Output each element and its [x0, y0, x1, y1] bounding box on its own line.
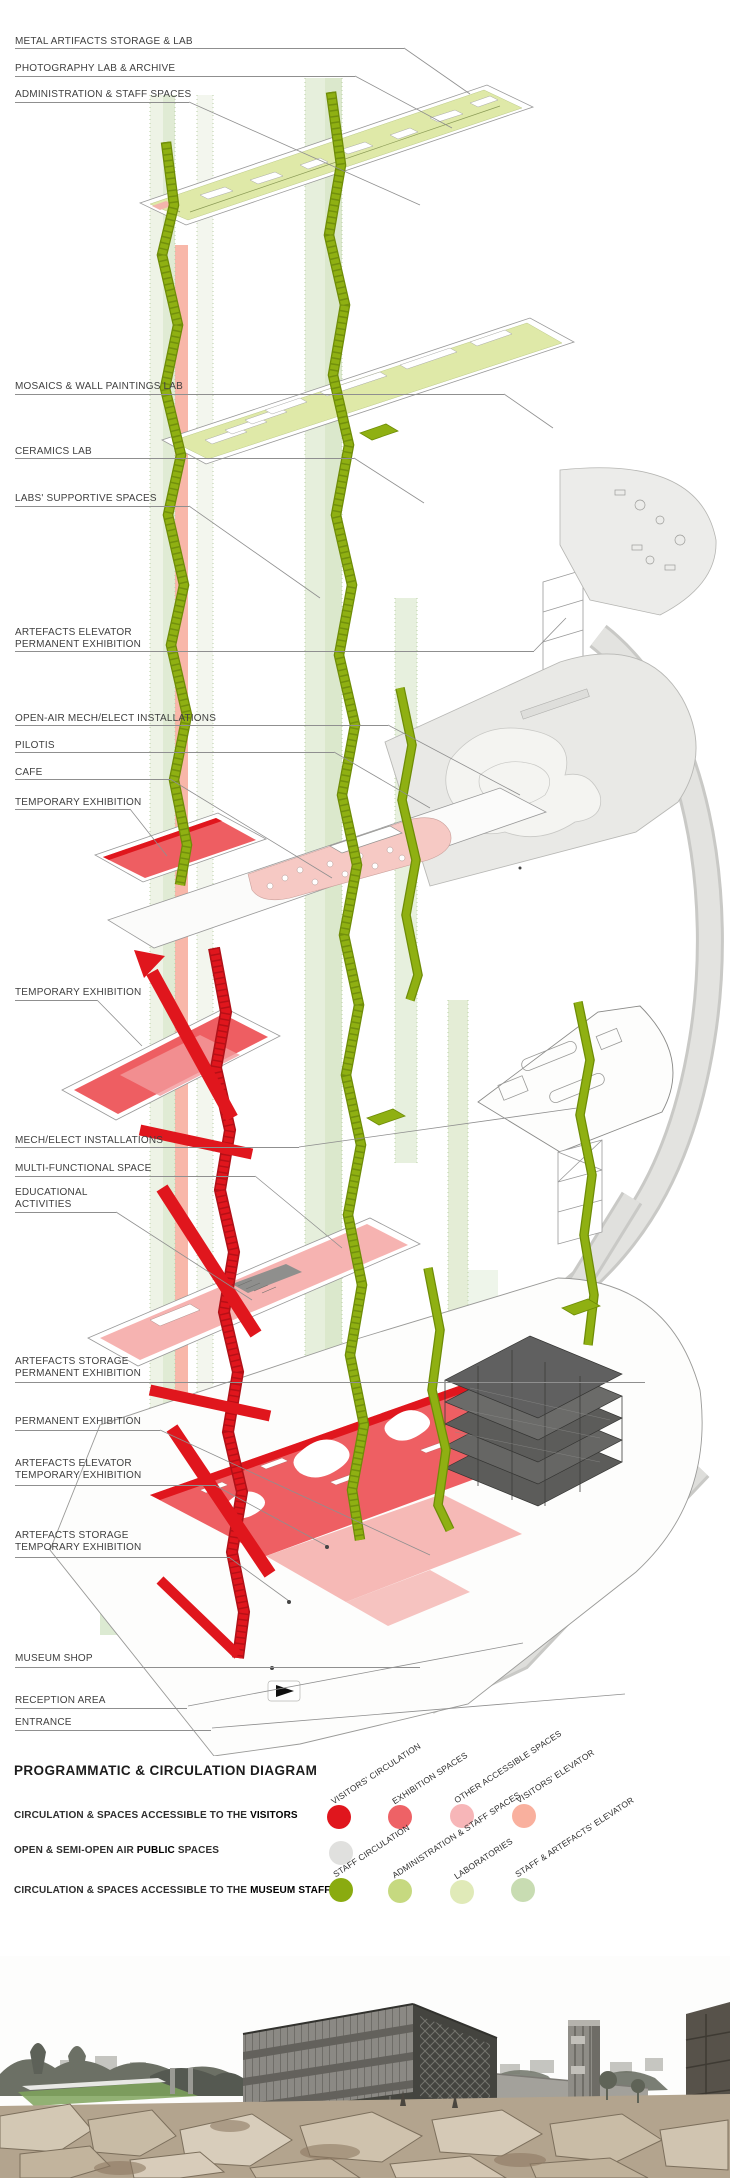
legend-title: PROGRAMMATIC & CIRCULATION DIAGRAM [14, 1763, 317, 1778]
leader-underline [15, 809, 130, 810]
swatch-label: LABORATORIES [452, 1836, 514, 1881]
leader-underline [15, 779, 170, 780]
leader-underline [15, 1667, 420, 1668]
legend-row-strong: VISITORS [250, 1810, 298, 1821]
label-administration: ADMINISTRATION & STAFF SPACES [15, 89, 191, 101]
label-artefacts-elevator-temporary: ARTEFACTS ELEVATOR TEMPORARY EXHIBITION [15, 1458, 141, 1481]
swatch-visitors-circulation [327, 1805, 351, 1829]
visitors-elevator-tower [558, 1140, 602, 1244]
leader-underline [15, 651, 534, 652]
label-temporary-exhibition-2: TEMPORARY EXHIBITION [15, 987, 141, 999]
legend-row-text: CIRCULATION & SPACES ACCESSIBLE TO THE [14, 1885, 250, 1896]
leader-underline [15, 1557, 230, 1558]
floor-mech-elect [478, 1006, 673, 1152]
legend-row-text: OPEN & SEMI-OPEN AIR [14, 1845, 137, 1856]
swatch-staff-artefacts-elevator [511, 1878, 535, 1902]
label-mech-elect: MECH/ELECT INSTALLATIONS [15, 1135, 163, 1147]
label-mosaics-lab: MOSAICS & WALL PAINTINGS LAB [15, 381, 183, 393]
label-photography-lab: PHOTOGRAPHY LAB & ARCHIVE [15, 63, 175, 75]
axonometric-diagram [0, 0, 730, 1756]
legend-row-text: CIRCULATION & SPACES ACCESSIBLE TO THE [14, 1810, 250, 1821]
leader-underline [15, 102, 189, 103]
leader-underline [15, 725, 388, 726]
label-cafe: CAFE [15, 767, 42, 779]
leader-underline [15, 1430, 160, 1431]
leader-underline [15, 458, 354, 459]
floor-labs [162, 318, 583, 674]
leader-underline [15, 1000, 97, 1001]
label-artefacts-storage-permanent: ARTEFACTS STORAGE PERMANENT EXHIBITION [15, 1356, 141, 1379]
swatch-staff-circulation [329, 1878, 353, 1902]
label-museum-shop: MUSEUM SHOP [15, 1653, 93, 1665]
leader-underline [15, 1212, 116, 1213]
poster-page: METAL ARTIFACTS STORAGE & LAB PHOTOGRAPH… [0, 0, 730, 2178]
legend-row-visitors: CIRCULATION & SPACES ACCESSIBLE TO THE V… [14, 1810, 298, 1821]
label-labs-supportive: LABS' SUPPORTIVE SPACES [15, 493, 157, 505]
swatch-laboratories [450, 1880, 474, 1904]
legend-row-public: OPEN & SEMI-OPEN AIR PUBLIC SPACES [14, 1845, 219, 1856]
label-entrance: ENTRANCE [15, 1717, 72, 1729]
leader-underline [15, 1730, 211, 1731]
label-pilotis: PILOTIS [15, 740, 55, 752]
label-reception-area: RECEPTION AREA [15, 1695, 106, 1707]
leader-underline [15, 752, 334, 753]
label-artefacts-elevator-permanent: ARTEFACTS ELEVATOR PERMANENT EXHIBITION [15, 627, 141, 650]
label-permanent-exhibition: PERMANENT EXHIBITION [15, 1416, 141, 1428]
label-temporary-exhibition-1: TEMPORARY EXHIBITION [15, 797, 141, 809]
legend-row-staff: CIRCULATION & SPACES ACCESSIBLE TO THE M… [14, 1885, 331, 1896]
leader-underline [15, 394, 504, 395]
legend-row-text: SPACES [175, 1845, 219, 1856]
label-metal-artifacts: METAL ARTIFACTS STORAGE & LAB [15, 36, 193, 48]
leader-underline [15, 1708, 187, 1709]
label-multi-functional: MULTI-FUNCTIONAL SPACE [15, 1163, 151, 1175]
swatch-visitors-elevator [512, 1804, 536, 1828]
site-photo [0, 1956, 730, 2178]
legend-row-strong: MUSEUM STAFF [250, 1885, 331, 1896]
leader-underline [15, 1147, 299, 1148]
leader-underline [15, 1485, 216, 1486]
label-artefacts-storage-temporary: ARTEFACTS STORAGE TEMPORARY EXHIBITION [15, 1530, 141, 1553]
terrace-site-plan [560, 468, 716, 615]
swatch-administration-staff [388, 1879, 412, 1903]
leader-underline [15, 48, 404, 49]
leader-underline [15, 506, 189, 507]
leader-underline [15, 1382, 645, 1383]
leader-underline [15, 1176, 255, 1177]
leader-underline [15, 76, 355, 77]
label-educational: EDUCATIONAL ACTIVITIES [15, 1187, 88, 1210]
label-open-air-mech: OPEN-AIR MECH/ELECT INSTALLATIONS [15, 713, 216, 725]
label-ceramics-lab: CERAMICS LAB [15, 446, 92, 458]
legend-row-strong: PUBLIC [137, 1845, 175, 1856]
